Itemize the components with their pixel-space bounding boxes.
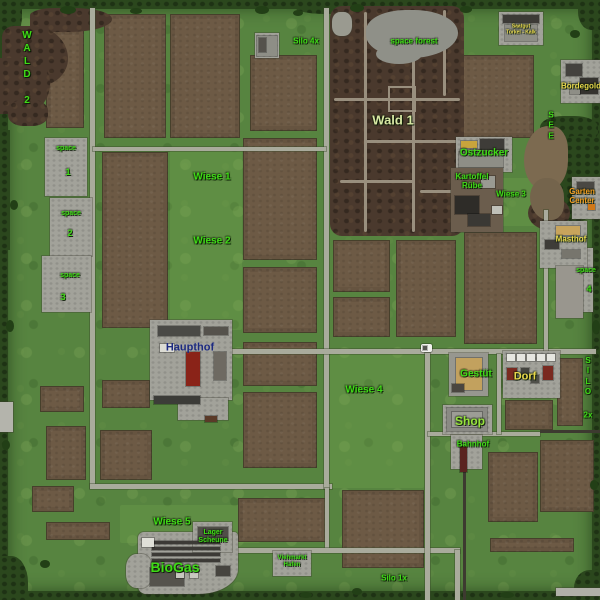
- label-space-4-word: space: [576, 267, 596, 275]
- label-wiese-3: Wiese 3: [496, 189, 526, 198]
- label-wiese-4: Wiese 4: [345, 384, 382, 396]
- map-overview: W A L D 2Silo 4xspace forestWald 1Saatgu…: [0, 0, 600, 600]
- label-wald-1: Wald 1: [372, 114, 413, 129]
- label-masthof: Masthof: [556, 234, 587, 243]
- label-space-2-num: 2: [67, 228, 72, 238]
- label-kartoffel-ruebe: Kartoffel Rübe: [456, 172, 489, 190]
- label-wald-2: W A L D 2: [22, 29, 31, 107]
- label-layer: W A L D 2Silo 4xspace forestWald 1Saatgu…: [0, 0, 600, 600]
- label-space-forest: space forest: [390, 36, 437, 45]
- label-space-4-num: 4: [586, 284, 591, 294]
- label-silo-2x: 2x: [584, 410, 593, 419]
- label-dorf: Dorf: [514, 371, 537, 384]
- label-silo-4x: Silo 4x: [293, 36, 319, 45]
- label-space-2-word: space: [61, 210, 81, 218]
- label-silo-1x: Silo 1x: [381, 573, 407, 582]
- label-boerdegold: Bördegold: [561, 81, 600, 90]
- label-wiese-2: Wiese 2: [193, 235, 230, 247]
- label-viehmarkt: Viehmarkt Hafen: [278, 555, 307, 569]
- label-space-3-word: space: [60, 272, 80, 280]
- label-gestuet: Gestüt: [460, 368, 492, 380]
- label-space-3-num: 3: [60, 292, 65, 302]
- label-biogas: BioGas: [150, 559, 199, 575]
- label-silo-vertical: S I L O: [585, 356, 591, 398]
- label-haupthof: Haupthof: [166, 342, 214, 355]
- label-lager-scheune: Lager Scheune: [198, 529, 227, 545]
- label-space-1-word: space: [56, 145, 76, 153]
- label-wiese-5: Wiese 5: [153, 516, 190, 528]
- label-ostzucker: Ostzucker: [460, 147, 508, 159]
- label-wiese-1: Wiese 1: [193, 171, 230, 183]
- label-space-1-num: 1: [65, 167, 70, 177]
- label-shop: Shop: [455, 415, 485, 429]
- label-bahnhof: Bahnhof: [457, 439, 489, 448]
- label-see: S E E: [548, 110, 553, 141]
- label-garten-center: Garten Center: [569, 187, 595, 205]
- label-station: Saatgut Torkel - Kalk: [506, 24, 536, 36]
